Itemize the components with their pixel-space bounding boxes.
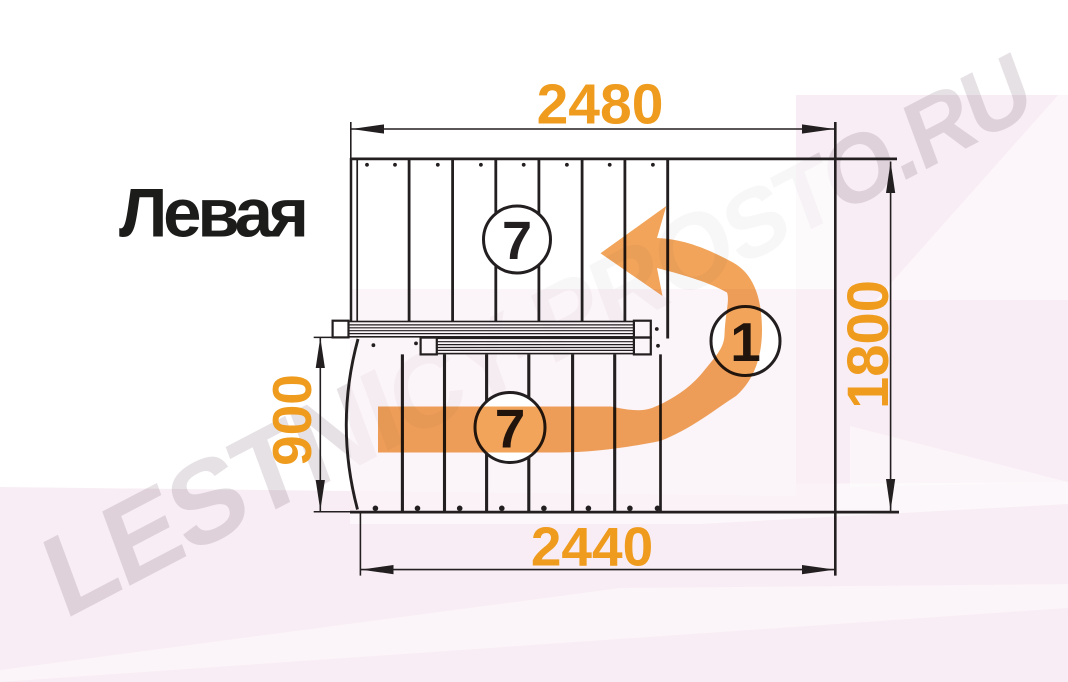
svg-text:2480: 2480 bbox=[537, 73, 664, 137]
svg-text:1800: 1800 bbox=[836, 280, 901, 409]
svg-text:7: 7 bbox=[502, 211, 532, 271]
svg-text:Левая: Левая bbox=[119, 175, 309, 252]
svg-text:2440: 2440 bbox=[531, 516, 653, 578]
svg-text:900: 900 bbox=[261, 374, 323, 466]
